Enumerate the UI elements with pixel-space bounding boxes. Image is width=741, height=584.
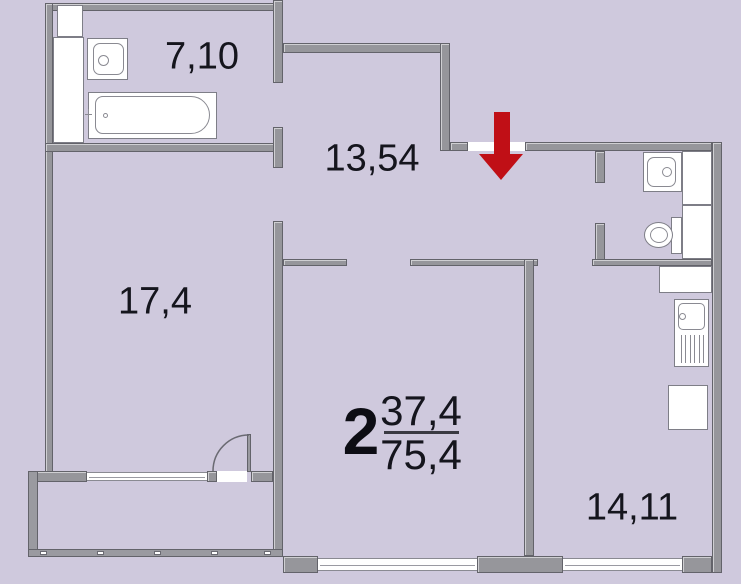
wall-segment [477,556,563,573]
floor-plan: 7,10 13,54 17,4 14,11 2 37,4 75,4 [0,0,741,584]
wall-segment [682,556,712,573]
wall-segment [525,142,712,151]
bathtub-drain [103,113,108,118]
balcony-post [97,551,104,555]
sink-drain [679,313,686,320]
window [563,558,682,571]
wall-segment [595,151,605,183]
drainboard-line [690,335,691,363]
entrance-arrow-icon [476,108,526,182]
room-area-label-hallway: 13,54 [324,138,419,181]
balcony-post [211,551,218,555]
balcony-post [40,551,47,555]
duct-shaft [682,205,712,259]
balcony-post [264,551,271,555]
drainboard-line [685,335,686,363]
wall-segment [45,143,283,152]
total-area-label: 75,4 [380,431,462,479]
wall-segment [273,127,283,168]
duct-shaft [682,151,712,205]
window [87,472,207,481]
drainboard-line [694,335,695,363]
wall-segment [45,3,53,482]
bathtub-tap [85,114,92,115]
balcony-post [154,551,161,555]
wall-segment [283,556,318,573]
wall-segment [712,142,722,573]
drainboard-line [699,335,700,363]
wall-segment [283,43,450,53]
kitchen-counter [659,266,712,293]
wall-segment [440,43,450,151]
kitchen-counter [668,385,708,430]
living-area-label: 37,4 [380,387,462,435]
sink-drain [98,55,109,66]
wall-segment [273,221,283,557]
wall-segment [524,259,534,556]
balcony-rail [28,471,38,557]
window [318,558,477,571]
rooms-count-label: 2 [343,393,380,469]
room-area-label-bathroom: 7,10 [165,36,239,79]
wall-segment [273,0,283,83]
toilet-bowl-inner [650,227,668,243]
room-area-label-left-room: 17,4 [118,281,192,324]
drainboard-line [681,335,682,363]
wall-segment [410,259,538,266]
sink-drain [662,167,672,177]
duct-shaft [57,5,83,37]
duct-shaft [53,37,84,143]
wall-segment [283,259,347,266]
bathtub-basin [95,96,210,134]
wall-segment [450,142,468,151]
wall-segment [592,259,712,266]
room-area-label-right-room: 14,11 [586,487,678,530]
drainboard-line [703,335,704,363]
balcony-door-arc-icon [203,428,255,476]
